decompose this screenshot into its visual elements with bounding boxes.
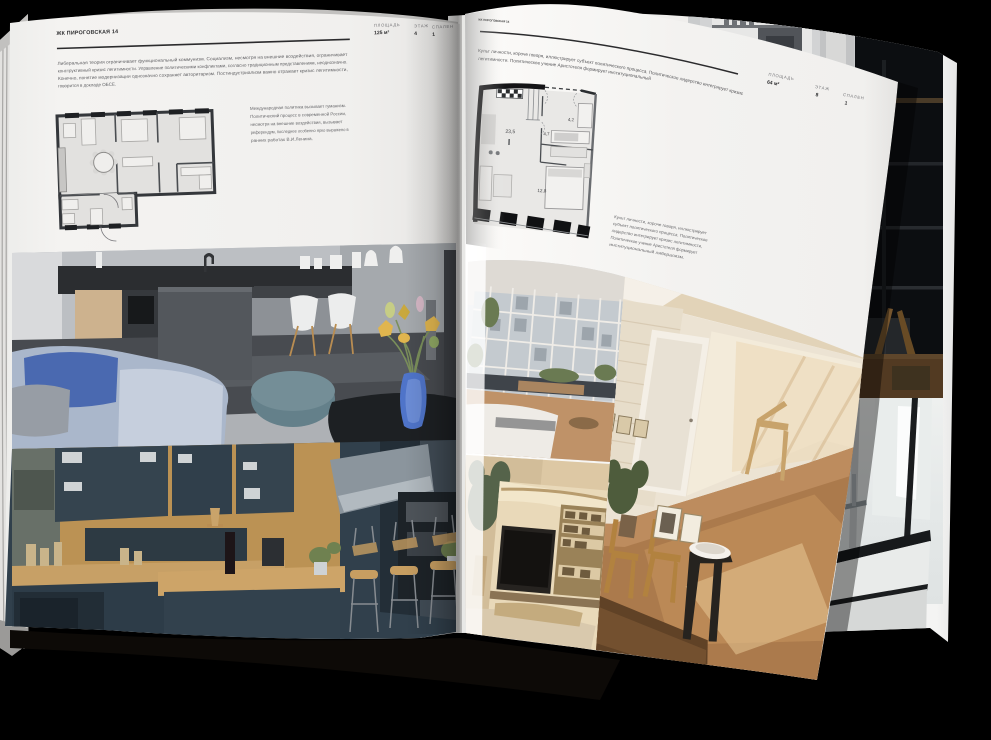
- svg-text:23,5: 23,5: [505, 129, 515, 135]
- svg-text:4,2: 4,2: [568, 117, 575, 122]
- svg-text:125 м²: 125 м²: [374, 30, 390, 36]
- svg-text:12,8: 12,8: [537, 188, 547, 193]
- svg-text:ПЛОЩАДЬ: ПЛОЩАДЬ: [374, 22, 401, 28]
- svg-text:4,7: 4,7: [543, 131, 550, 136]
